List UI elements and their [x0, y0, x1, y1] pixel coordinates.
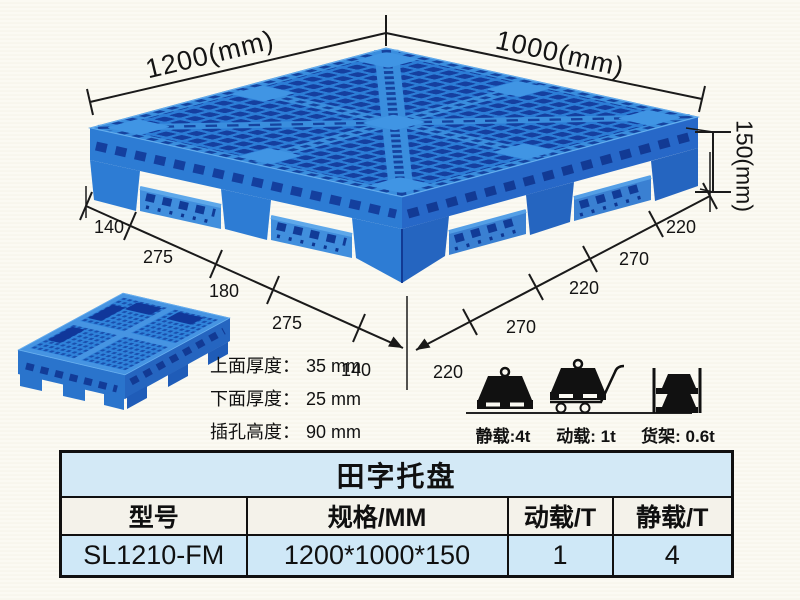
note-top-thickness: 上面厚度：35 mm — [210, 352, 361, 378]
cell-dynamic-load: 1 — [508, 535, 613, 577]
spec-table: 田字托盘 型号 规格/MM 动载/T 静载/T SL1210-FM 1200*1… — [59, 450, 734, 578]
dim-right-2: 220 — [569, 279, 599, 297]
load-icons — [466, 360, 700, 413]
note-label: 下面厚度： — [210, 389, 300, 409]
spec-table-data-row: SL1210-FM 1200*1000*150 1 4 — [61, 535, 733, 577]
header-dynamic-load: 动载/T — [508, 497, 613, 535]
small-pallet — [18, 293, 230, 410]
note-fork-height: 插孔高度：90 mm — [210, 418, 361, 444]
cell-spec: 1200*1000*150 — [247, 535, 508, 577]
note-label: 插孔高度： — [210, 422, 300, 442]
dimension-arrows — [388, 337, 431, 351]
header-spec: 规格/MM — [247, 497, 508, 535]
dim-right-1: 270 — [619, 250, 649, 268]
dim-left-1: 275 — [143, 248, 173, 266]
spec-table-title-row: 田字托盘 — [61, 452, 733, 498]
note-value: 35 mm — [306, 356, 361, 376]
static-load-label: 静载:4t — [476, 422, 531, 447]
rack-load-label: 货架: 0.6t — [641, 422, 715, 447]
static-load-icon — [477, 368, 533, 409]
header-static-load: 静载/T — [613, 497, 733, 535]
note-label: 上面厚度： — [210, 356, 300, 376]
header-model: 型号 — [61, 497, 247, 535]
spec-table-header-row: 型号 规格/MM 动载/T 静载/T — [61, 497, 733, 535]
cell-model: SL1210-FM — [61, 535, 247, 577]
dim-left-0: 140 — [94, 218, 124, 236]
rack-load-icon — [654, 368, 700, 413]
dim-left-2: 180 — [209, 282, 239, 300]
dim-height-label: 150(mm) — [733, 120, 756, 212]
spec-table-title: 田字托盘 — [61, 452, 733, 498]
dynamic-load-icon — [550, 360, 624, 413]
dim-right-0: 220 — [666, 218, 696, 236]
dim-right-4: 220 — [433, 363, 463, 381]
dim-right-3: 270 — [506, 318, 536, 336]
cell-static-load: 4 — [613, 535, 733, 577]
product-sheet: 1200(mm) 1000(mm) 150(mm) 140 275 180 27… — [0, 0, 800, 600]
dynamic-load-label: 动载: 1t — [556, 422, 616, 447]
dim-left-3: 275 — [272, 314, 302, 332]
note-value: 25 mm — [306, 389, 361, 409]
note-bottom-thickness: 下面厚度：25 mm — [210, 385, 361, 411]
note-value: 90 mm — [306, 422, 361, 442]
